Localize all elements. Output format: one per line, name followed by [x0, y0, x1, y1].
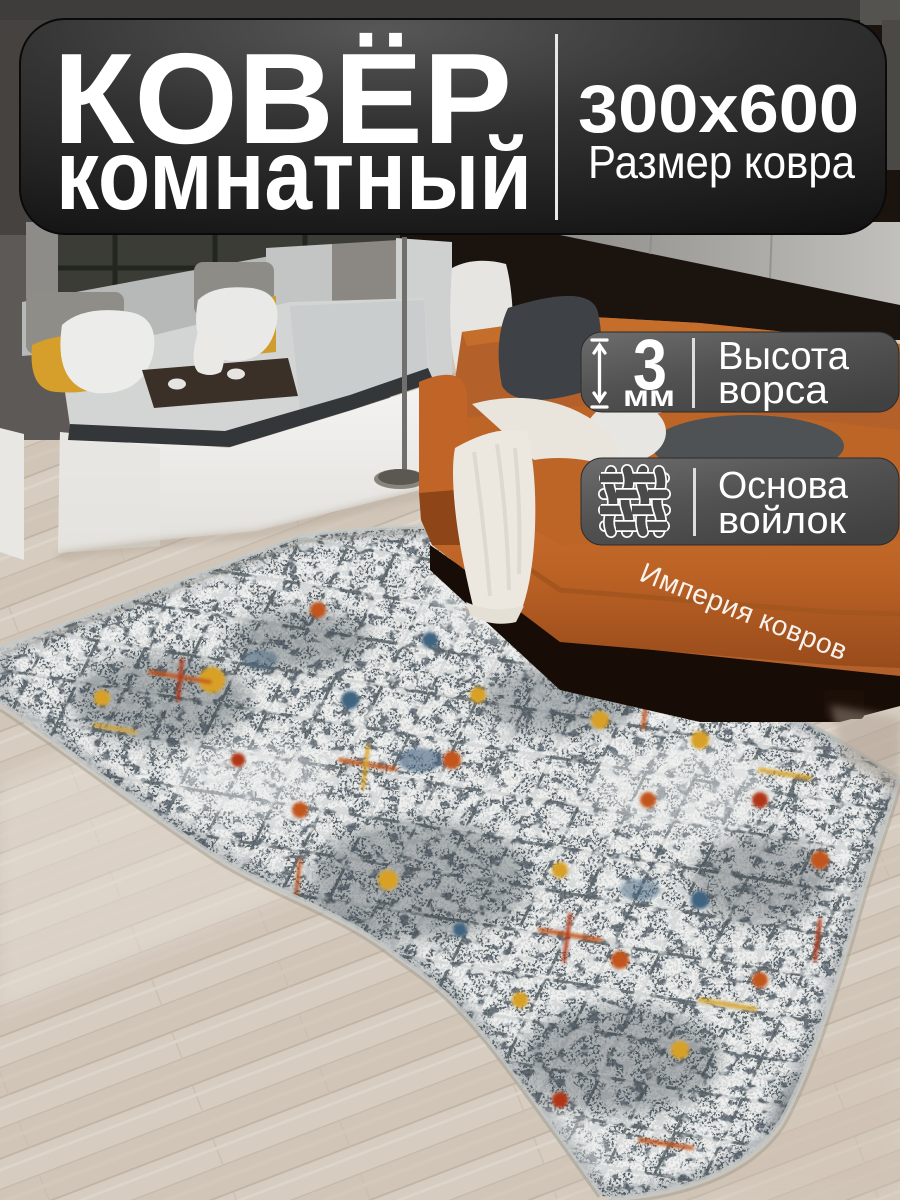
svg-text:мм: мм: [623, 380, 675, 413]
svg-text:ворса: ворса: [718, 369, 828, 412]
svg-text:комнатный: комнатный: [56, 119, 532, 231]
svg-text:войлок: войлок: [718, 500, 846, 542]
svg-text:Размер ковра: Размер ковра: [588, 136, 855, 188]
